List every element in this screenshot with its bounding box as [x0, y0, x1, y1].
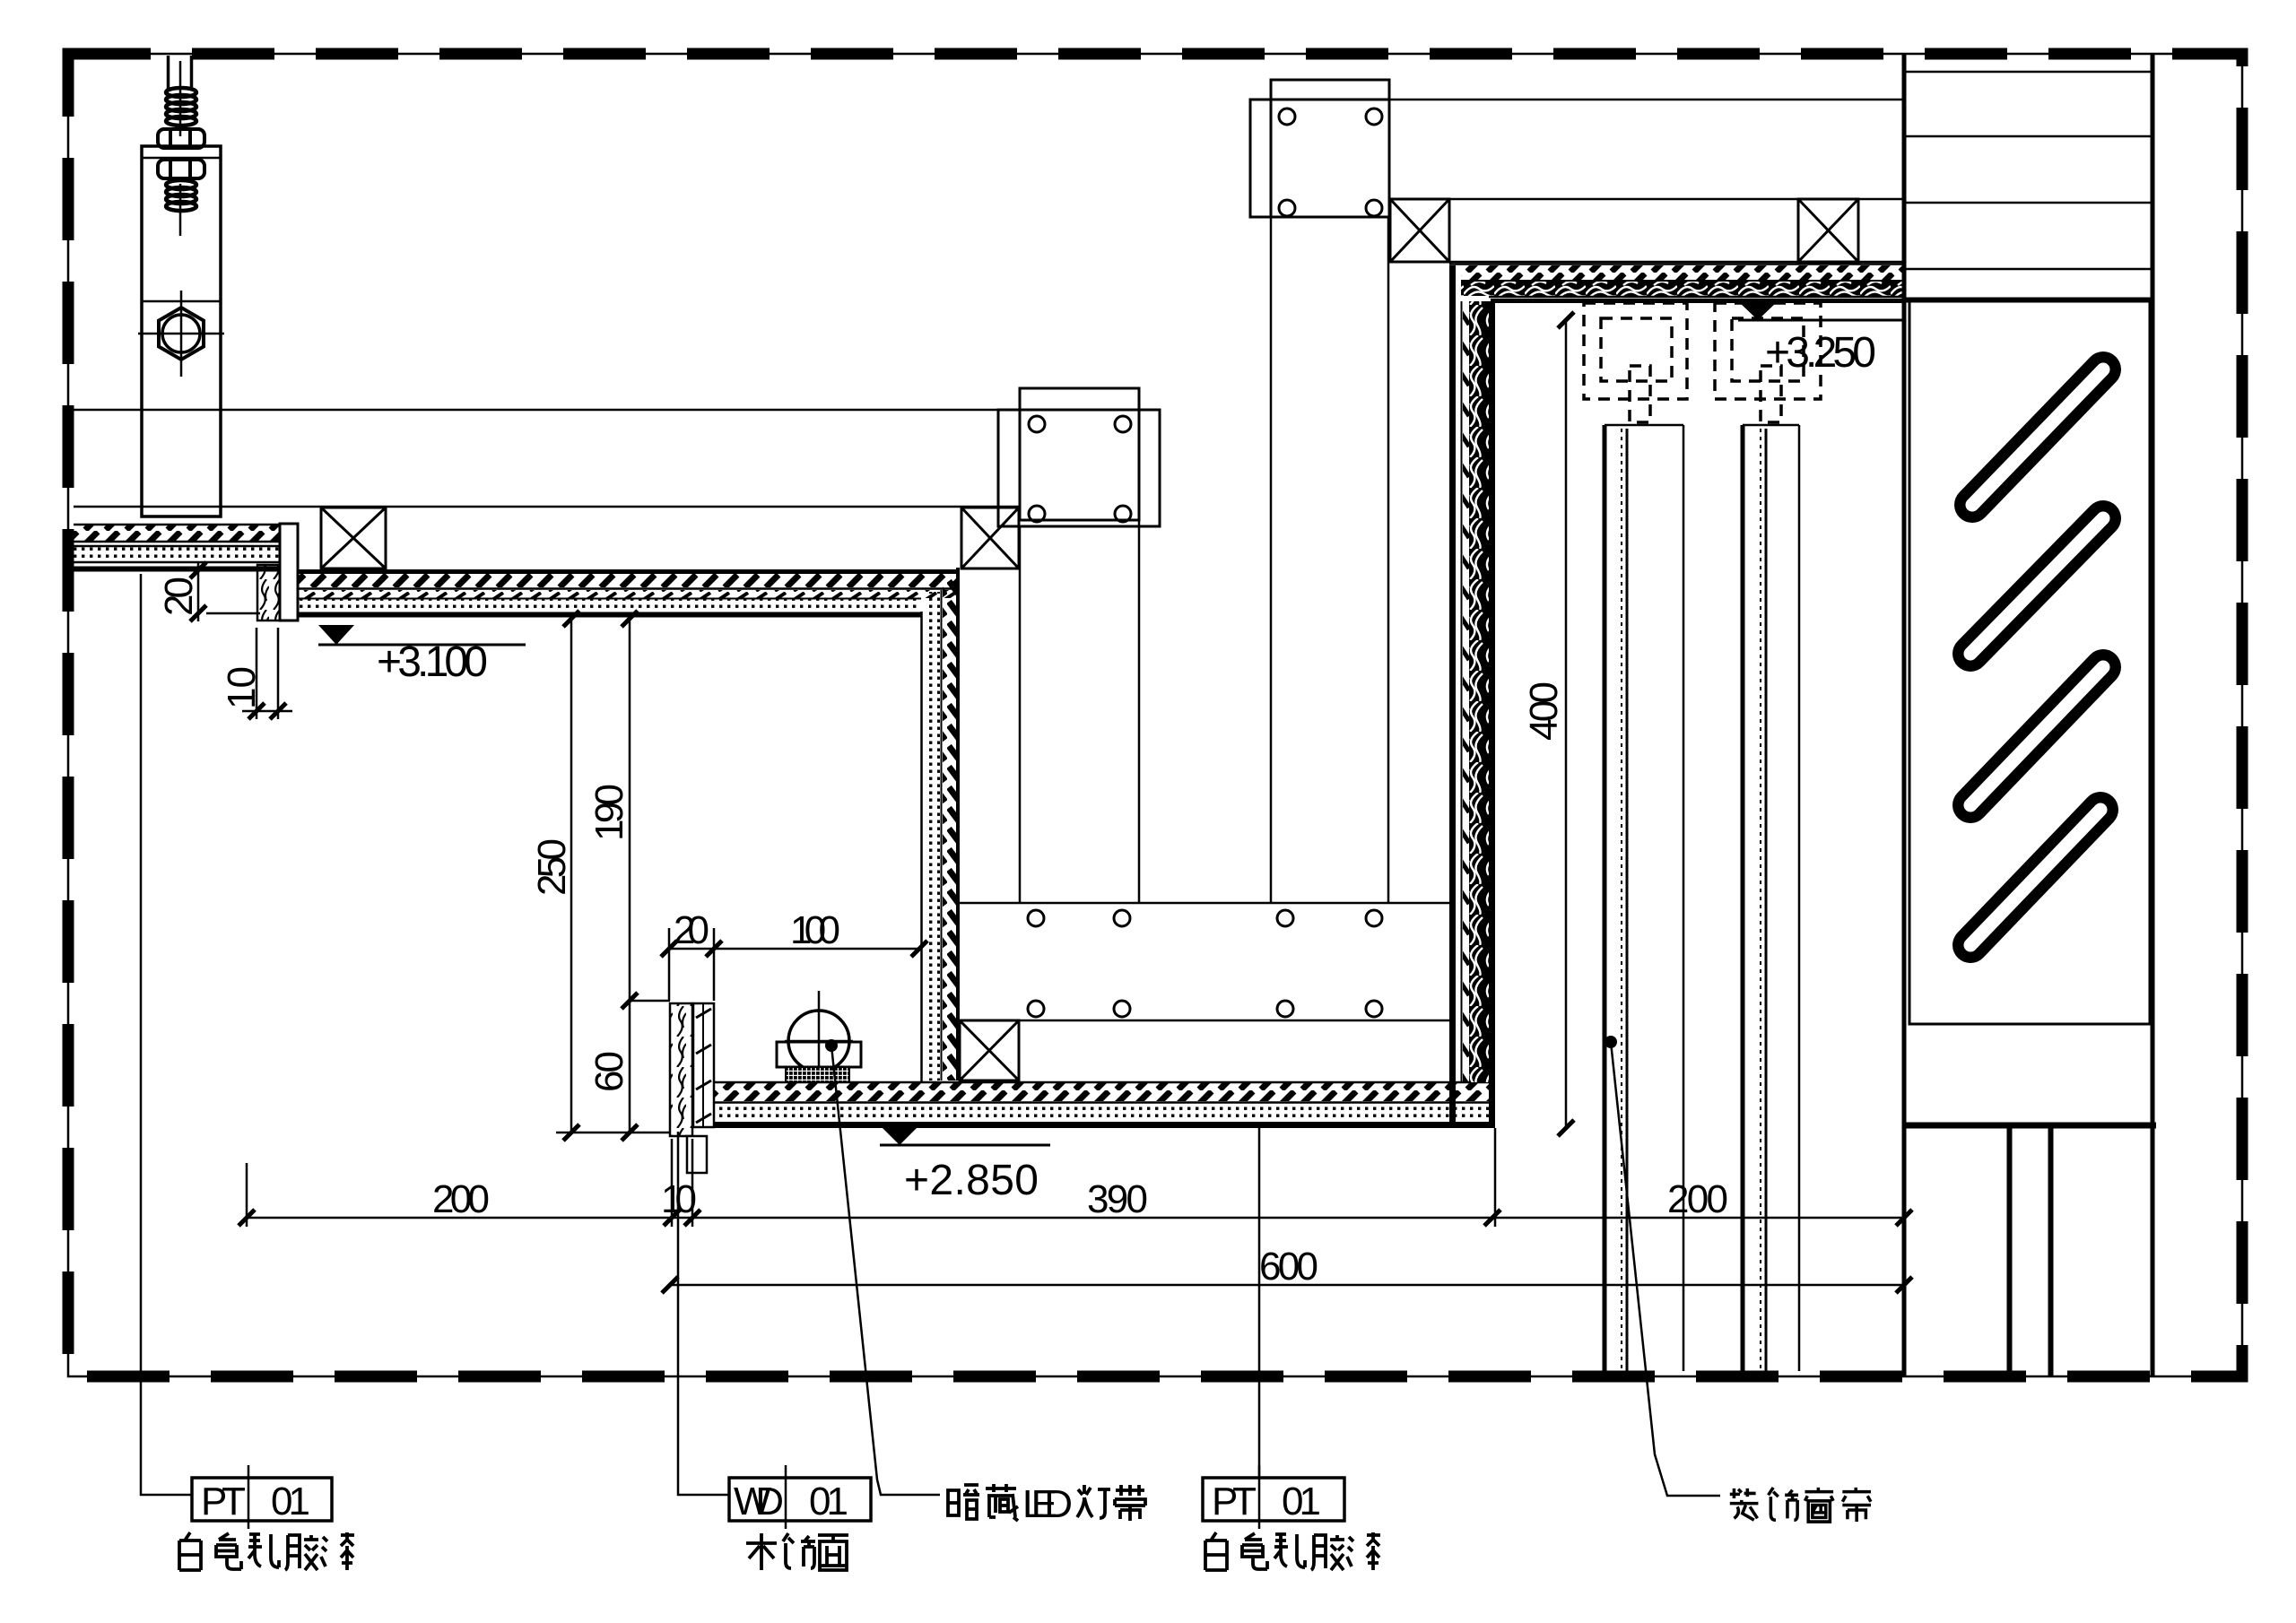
svg-text:250: 250 — [530, 838, 574, 896]
svg-text:400: 400 — [1522, 681, 1566, 741]
svg-text:PT: PT — [1212, 1480, 1257, 1523]
svg-text:600: 600 — [1259, 1245, 1318, 1289]
svg-text:+3.100: +3.100 — [377, 638, 488, 686]
svg-text:200: 200 — [1667, 1177, 1728, 1221]
svg-text:01: 01 — [809, 1480, 848, 1523]
svg-text:20: 20 — [674, 908, 709, 952]
svg-text:+2.850: +2.850 — [904, 1157, 1039, 1204]
svg-text:WD: WD — [734, 1480, 784, 1523]
svg-text:PT: PT — [201, 1480, 246, 1523]
svg-text:10: 10 — [220, 666, 264, 709]
svg-text:60: 60 — [587, 1051, 631, 1092]
svg-text:190: 190 — [587, 784, 631, 841]
svg-text:LED: LED — [1022, 1482, 1073, 1526]
svg-text:390: 390 — [1087, 1177, 1148, 1221]
svg-text:100: 100 — [790, 908, 840, 952]
svg-text:01: 01 — [271, 1480, 310, 1523]
svg-text:01: 01 — [1282, 1480, 1321, 1523]
svg-text:200: 200 — [432, 1177, 490, 1221]
svg-text:20: 20 — [157, 577, 201, 616]
